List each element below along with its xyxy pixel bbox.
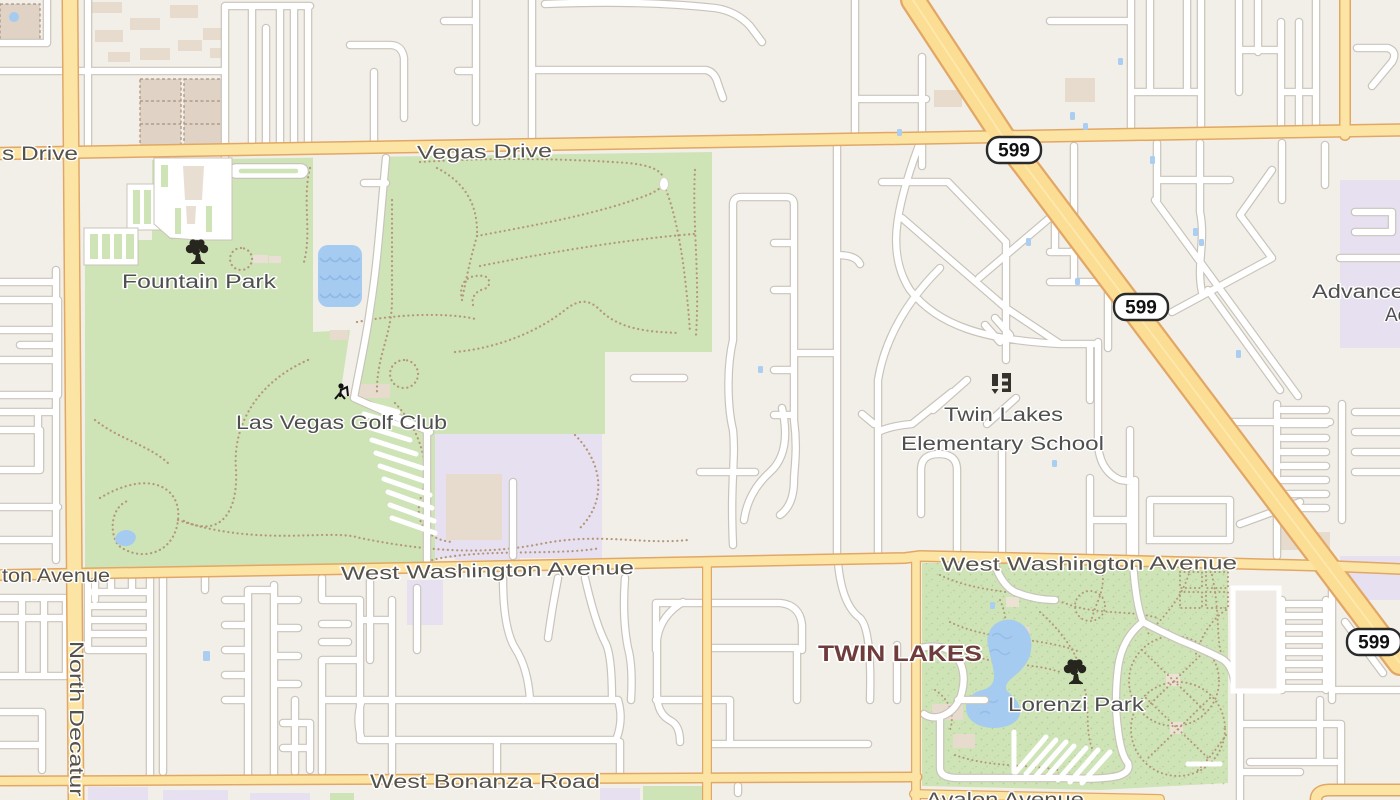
- svg-text:599: 599: [998, 141, 1030, 162]
- svg-text:Twin Lakes: Twin Lakes: [944, 405, 1063, 426]
- svg-text:Avalon Avenue: Avalon Avenue: [926, 790, 1084, 800]
- svg-text:599: 599: [1125, 298, 1157, 319]
- svg-text:West Bonanza Road: West Bonanza Road: [370, 772, 600, 793]
- svg-text:North Decatur Boulevard: North Decatur Boulevard: [65, 641, 86, 800]
- svg-text:599: 599: [1358, 633, 1390, 654]
- svg-text:TWIN LAKES: TWIN LAKES: [818, 641, 982, 666]
- svg-text:West Washington Avenue: West Washington Avenue: [941, 553, 1237, 576]
- svg-text:s Drive: s Drive: [2, 144, 78, 165]
- svg-text:ton Avenue: ton Avenue: [2, 566, 110, 587]
- svg-text:Fountain Park: Fountain Park: [122, 272, 277, 293]
- svg-text:Advanced: Advanced: [1312, 282, 1400, 303]
- svg-text:Elementary School: Elementary School: [901, 434, 1104, 455]
- svg-text:Vegas Drive: Vegas Drive: [417, 141, 552, 164]
- svg-text:Lorenzi Park: Lorenzi Park: [1008, 695, 1145, 716]
- svg-text:Las Vegas Golf Club: Las Vegas Golf Club: [236, 413, 447, 434]
- svg-text:Academy: Academy: [1385, 305, 1400, 326]
